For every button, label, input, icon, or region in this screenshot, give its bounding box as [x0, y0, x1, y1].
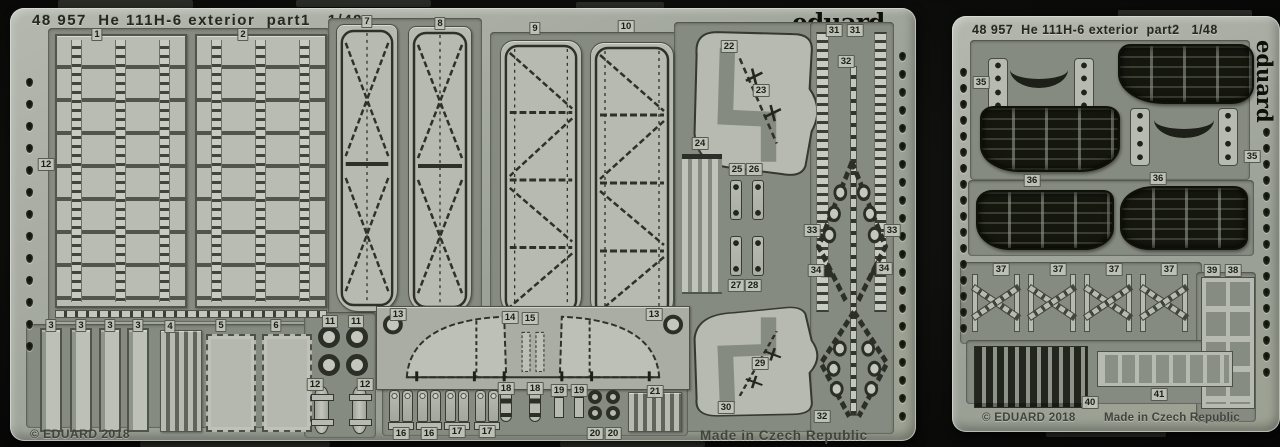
sprocket-hole [1263, 272, 1270, 281]
sprocket-hole [960, 148, 967, 157]
part-number-label: 25 [729, 163, 746, 176]
sprocket-hole [1263, 304, 1270, 313]
ring-part-20 [588, 406, 602, 420]
brace-post [1028, 274, 1034, 332]
sprocket-hole [26, 78, 33, 87]
fitting-part-26 [752, 180, 764, 220]
fitting-part-25 [730, 180, 742, 220]
part-number-label: 12 [357, 378, 374, 391]
sprocket-hole [899, 178, 906, 187]
sprocket-hole [960, 196, 967, 205]
ladder-strip [211, 40, 222, 302]
part-number-label: 11 [322, 315, 338, 328]
part-number-label: 19 [571, 384, 588, 397]
frame-parts-38-39 [1202, 278, 1254, 408]
sprocket-hole [1263, 176, 1270, 185]
sprocket-hole [899, 358, 906, 367]
sheet-title: 48 957 He 111H-6 exterior part2 1/48 [972, 23, 1218, 37]
part-number-label: 39 [1204, 264, 1221, 277]
part-number-label: 8 [434, 17, 445, 30]
sprocket-hole [1263, 144, 1270, 153]
sprocket-hole [960, 132, 967, 141]
part-number-label: 21 [647, 385, 664, 398]
part-number-label: 24 [692, 137, 709, 150]
part-number-label: 37 [993, 263, 1010, 276]
strip-part-3 [127, 328, 149, 432]
photo-etch-sheet-part2: 48 957 He 111H-6 exterior part2 1/48 edu… [952, 16, 1280, 432]
part-number-label: 32 [838, 55, 855, 68]
made-in-text: Made in Czech Republic [1104, 412, 1240, 424]
part-number-label: 40 [1082, 396, 1099, 409]
sprocket-hole [26, 298, 33, 307]
radiator-grille-part-36 [1120, 186, 1248, 250]
sprocket-hole [899, 142, 906, 151]
sprocket-hole [899, 412, 906, 421]
part-number-label: 35 [973, 76, 990, 89]
ladder-strip [71, 40, 82, 302]
sprocket-hole [960, 68, 967, 77]
sprocket-hole [899, 52, 906, 61]
ring-part-20 [606, 390, 620, 404]
part-number-label: 29 [752, 357, 769, 370]
sprocket-hole [1263, 224, 1270, 233]
film-tab [140, 441, 330, 447]
part-number-label: 15 [522, 312, 539, 325]
part-number-label: 30 [718, 401, 735, 414]
x-brace-part-37 [1028, 272, 1076, 336]
sprocket-hole [899, 394, 906, 403]
radiator-grille-part-35 [1118, 44, 1254, 104]
sprocket-hole [960, 116, 967, 125]
part-number-label: 31 [826, 24, 843, 37]
part-number-label: 18 [498, 382, 515, 395]
sprocket-hole [899, 250, 906, 259]
part-number-label: 23 [753, 84, 770, 97]
sprocket-hole [960, 228, 967, 237]
sprocket-hole [1263, 336, 1270, 345]
strip-part-3 [99, 328, 121, 432]
sprocket-hole [26, 166, 33, 175]
part-number-label: 41 [1151, 388, 1168, 401]
sprocket-hole [1263, 352, 1270, 361]
part-number-label: 16 [421, 427, 438, 440]
sprocket-hole [26, 188, 33, 197]
sprocket-hole [899, 322, 906, 331]
ring-part-20 [588, 390, 602, 404]
part-number-label: 33 [804, 224, 821, 237]
door-part-9 [500, 40, 582, 318]
sheet-title: 48 957 He 111H-6 exterior part1 1/48 [32, 12, 363, 29]
film-tab [296, 0, 431, 7]
sprocket-hole [1263, 208, 1270, 217]
part-number-label: 20 [605, 427, 622, 440]
part-number-label: 17 [449, 425, 466, 438]
door-part-8 [408, 26, 472, 314]
brace-post [1140, 274, 1146, 332]
part-number-label: 18 [527, 382, 544, 395]
sprocket-hole [26, 100, 33, 109]
sprocket-hole [899, 70, 906, 79]
part-number-label: 37 [1161, 263, 1178, 276]
part-number-label: 6 [270, 319, 281, 332]
comb-part-40 [974, 346, 1088, 408]
sprocket-hole [899, 106, 906, 115]
copyright-text: © EDUARD 2018 [30, 427, 130, 441]
comb-part-4 [160, 330, 202, 432]
ladder-part-41 [1098, 352, 1232, 386]
part-number-label: 10 [618, 20, 635, 33]
part-number-label: 9 [529, 22, 540, 35]
part-number-label: 13 [390, 308, 407, 321]
part-number-label: 3 [104, 319, 115, 332]
part-number-label: 37 [1106, 263, 1123, 276]
clamp-part-17 [444, 390, 470, 430]
sprocket-hole [1263, 240, 1270, 249]
ladder-strip [299, 40, 310, 302]
sprocket-hole [899, 160, 906, 169]
sprocket-hole [960, 244, 967, 253]
ladder-strip [255, 40, 266, 302]
part-number-label: 37 [1050, 263, 1067, 276]
sprocket-hole [960, 212, 967, 221]
part-number-label: 34 [808, 264, 825, 277]
sprocket-hole [26, 210, 33, 219]
hinge-strip [55, 310, 327, 318]
bomb-part-12 [314, 386, 329, 434]
sprocket-hole [960, 164, 967, 173]
sprocket-hole [1263, 128, 1270, 137]
part-number-label: 13 [646, 308, 663, 321]
brace-post [1084, 274, 1090, 332]
radiator-grille-part-35 [980, 106, 1120, 172]
part-number-label: 38 [1225, 264, 1242, 277]
part-number-label: 1 [91, 28, 102, 41]
part-number-label: 3 [45, 319, 56, 332]
bracket-part-35 [1218, 108, 1238, 166]
fitting-part-27 [730, 236, 742, 276]
sprocket-hole [960, 180, 967, 189]
photo-etch-sheet-part1: 48 957 He 111H-6 exterior part1 1/48 edu… [10, 8, 916, 441]
clamp-part-17 [474, 390, 500, 430]
part-number-label: 35 [1244, 150, 1261, 163]
sprocket-hole [899, 304, 906, 313]
sprocket-hole [1263, 256, 1270, 265]
eduard-logo: eduard [1252, 40, 1277, 123]
ring-part-11 [318, 326, 340, 348]
sprocket-hole [899, 268, 906, 277]
part-number-label: 22 [721, 40, 738, 53]
part-number-label: 32 [814, 410, 831, 423]
sprocket-hole [26, 144, 33, 153]
part-number-label: 2 [237, 28, 248, 41]
sprocket-hole [960, 100, 967, 109]
part-number-label: 28 [745, 279, 762, 292]
trestle-part-32-lower [810, 310, 898, 422]
part-number-label: 5 [215, 319, 226, 332]
sprocket-hole [899, 196, 906, 205]
product-photo: { "photo": { "background_color": "#0b0b0… [0, 0, 1280, 447]
panel-part-1 [55, 34, 187, 308]
sprocket-hole [899, 376, 906, 385]
sprocket-hole [899, 124, 906, 133]
part-number-label: 20 [587, 427, 604, 440]
part-number-label: 36 [1024, 174, 1041, 187]
sprocket-hole [899, 88, 906, 97]
part-number-label: 36 [1150, 172, 1167, 185]
part-number-label: 33 [884, 224, 901, 237]
radiator-grille-part-36 [976, 190, 1114, 250]
door-part-10 [590, 42, 674, 322]
part-number-label: 34 [876, 262, 893, 275]
ring-part-11 [346, 326, 368, 348]
ladder-strip [159, 40, 170, 302]
brace-post [972, 274, 978, 332]
strips-part-24 [682, 154, 722, 294]
bracket-part-35 [1130, 108, 1150, 166]
ring-part-20 [606, 406, 620, 420]
film-tab [560, 441, 705, 447]
sprocket-hole [1263, 320, 1270, 329]
sprocket-hole [1263, 160, 1270, 169]
door-part-7 [336, 24, 398, 312]
part-number-label: 27 [728, 279, 745, 292]
part-number-label: 11 [348, 315, 364, 328]
sprocket-hole [960, 84, 967, 93]
x-brace-part-37 [1140, 272, 1188, 336]
ring-part-11 [318, 354, 340, 376]
part-number-label: 3 [75, 319, 86, 332]
sprocket-hole [26, 122, 33, 131]
sprocket-hole [26, 276, 33, 285]
sprocket-hole [1263, 192, 1270, 201]
x-brace-part-37 [972, 272, 1020, 336]
panel-part-5 [206, 334, 256, 432]
sprocket-hole [26, 232, 33, 241]
x-brace-part-37 [1084, 272, 1132, 336]
panel-part-2 [195, 34, 327, 308]
part-number-label: 14 [502, 311, 519, 324]
strip-part-3 [70, 328, 92, 432]
part-number-label: 17 [479, 425, 496, 438]
sprocket-hole [899, 286, 906, 295]
sprocket-hole [899, 340, 906, 349]
fitting-part-28 [752, 236, 764, 276]
strip-part-3 [40, 328, 62, 432]
sprocket-hole [1263, 368, 1270, 377]
part-number-label: 4 [164, 320, 175, 333]
clamp-part-16 [388, 390, 414, 430]
part-number-label: 7 [361, 15, 372, 28]
part-number-label: 26 [746, 163, 763, 176]
sprocket-hole [899, 214, 906, 223]
part-number-label: 12 [307, 378, 324, 391]
made-in-text: Made in Czech Republic [700, 428, 868, 443]
clamp-part-16 [416, 390, 442, 430]
ladder-strip [115, 40, 126, 302]
ring-part-11 [346, 354, 368, 376]
panel-part-6 [262, 334, 312, 432]
part-number-label: 16 [393, 427, 410, 440]
part-number-label: 3 [132, 319, 143, 332]
cowl-part-29-30 [674, 302, 824, 422]
sprocket-hole [1263, 288, 1270, 297]
copyright-text: © EDUARD 2018 [982, 412, 1076, 424]
part-number-label: 19 [551, 384, 568, 397]
part-number-label: 31 [847, 24, 864, 37]
sprocket-hole [26, 254, 33, 263]
comb-part-21 [628, 392, 682, 432]
part-number-label: 12 [38, 158, 55, 171]
bomb-part-12 [352, 386, 367, 434]
